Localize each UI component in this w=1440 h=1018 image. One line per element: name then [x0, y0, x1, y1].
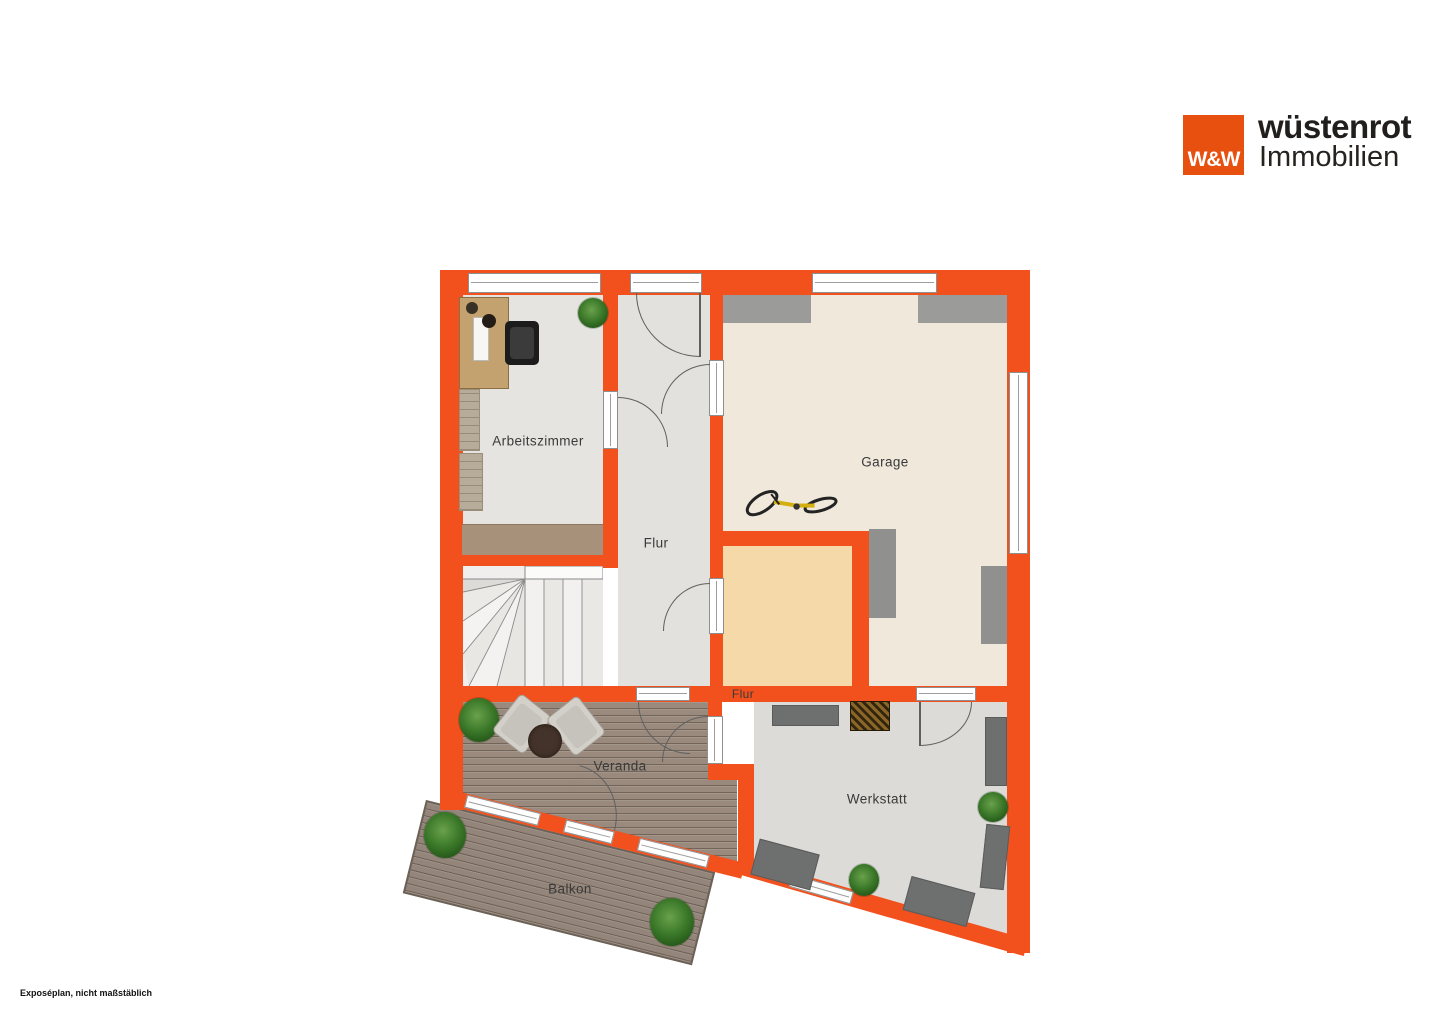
room-label-veranda: Veranda — [593, 759, 646, 774]
garage-door-rail-right — [918, 294, 1007, 323]
garage-shelf-right — [981, 566, 1007, 644]
veranda-werkstatt-window — [707, 716, 723, 764]
brand-division: Immobilien — [1259, 143, 1399, 172]
office-chair — [505, 321, 539, 365]
bicycle-icon — [742, 478, 842, 524]
plant-balkon-2 — [650, 898, 694, 946]
office-chair-seat — [510, 327, 534, 359]
werkstatt-left-wall — [738, 764, 754, 868]
plant-werkstatt-2 — [849, 864, 879, 896]
werkstatt-door-leaf — [919, 702, 921, 746]
logo-monogram: W&W — [1188, 149, 1240, 175]
plant-werkstatt-1 — [978, 792, 1008, 822]
disclaimer-note: Exposéplan, nicht maßstäblich — [20, 988, 152, 998]
flur-klein-door-jamb — [709, 578, 724, 634]
flur-veranda-threshold — [636, 687, 690, 701]
arbeitszimmer-window — [468, 273, 601, 293]
garage-door-rail-left — [723, 294, 811, 323]
flur-entry-door-opening — [630, 273, 702, 293]
arbeitszimmer-door-jamb — [603, 391, 618, 449]
veranda-table — [528, 724, 562, 758]
desk-lamp — [466, 302, 478, 314]
garage-shelf-mid — [869, 529, 896, 618]
flur-garage-door-jamb — [709, 360, 724, 416]
garage-side-window — [1009, 372, 1028, 554]
room-label-flur: Flur — [644, 536, 669, 551]
plant-veranda — [459, 698, 499, 742]
flur-klein-floor — [723, 546, 852, 686]
workbench-right-1 — [985, 717, 1007, 786]
plant-arbeitszimmer — [578, 298, 608, 328]
garage-door-opening — [812, 273, 937, 293]
sideboard — [462, 524, 603, 555]
woven-crate — [850, 701, 890, 731]
entry-door-leaf — [699, 293, 701, 357]
shelf-unit-2 — [459, 453, 483, 511]
room-label-arbeitszimmer: Arbeitszimmer — [492, 434, 583, 449]
desk — [459, 297, 509, 389]
plant-balkon-1 — [424, 812, 466, 858]
flur-klein-top-wall — [710, 531, 868, 546]
room-label-flur-klein: Flur — [732, 687, 754, 701]
ww-logo-icon: W&W — [1183, 115, 1244, 175]
garage-werkstatt-threshold — [916, 687, 976, 701]
flur-klein-right-wall — [852, 531, 869, 686]
winder-stairs-icon — [463, 566, 603, 686]
brand-name: wüstenrot — [1258, 110, 1411, 143]
workbench-top — [772, 705, 839, 726]
shelf-unit-1 — [459, 389, 480, 451]
room-label-werkstatt: Werkstatt — [847, 792, 907, 807]
room-label-balkon: Balkon — [548, 882, 592, 897]
room-label-garage: Garage — [861, 455, 908, 470]
desk-object — [482, 314, 496, 328]
